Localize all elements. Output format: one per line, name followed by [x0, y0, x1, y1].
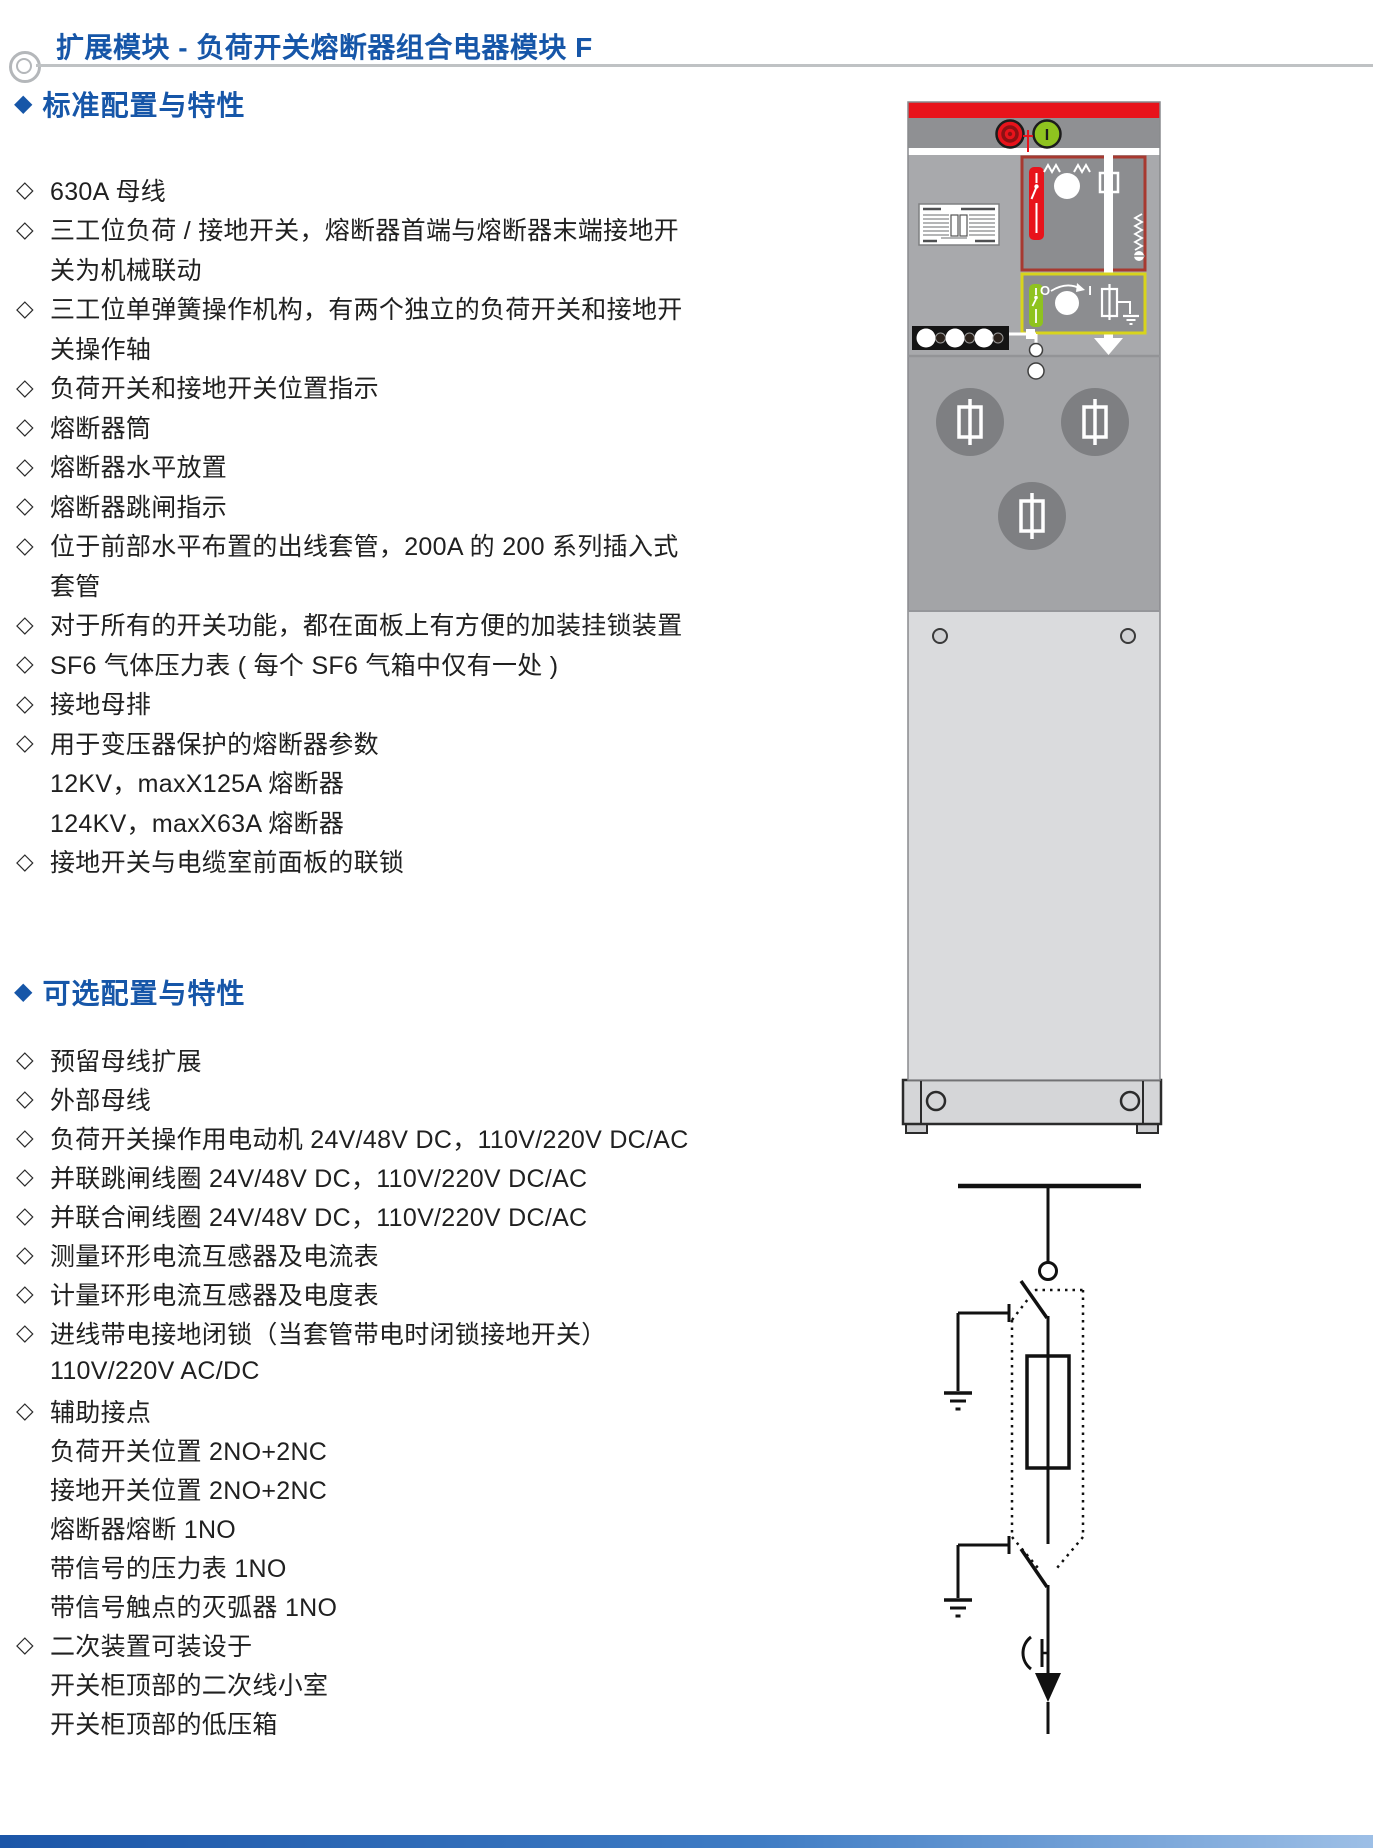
load-break-switch-blade	[1021, 1281, 1047, 1318]
item-text: 熔断器水平放置	[50, 448, 227, 484]
diamond-bullet-icon: ◇	[16, 1126, 50, 1149]
earth-branch-bottom	[944, 1536, 1009, 1616]
item-text: 外部母线	[50, 1081, 151, 1117]
close-button-label: I	[1045, 127, 1049, 144]
title-divider	[36, 64, 1373, 67]
list-item: 接地开关位置 2NO+2NC	[16, 1469, 736, 1508]
single-line-diagram	[930, 1170, 1170, 1745]
list-item: ◇ 辅助接点	[16, 1391, 736, 1430]
item-text: 三工位负荷 / 接地开关，熔断器首端与熔断器末端接地开	[50, 211, 679, 247]
earthing-switch-blade	[1021, 1549, 1047, 1587]
list-item: 关为机械联动	[16, 249, 736, 289]
item-text: 预留母线扩展	[50, 1042, 202, 1078]
item-text: 三工位单弹簧操作机构，有两个独立的负荷开关和接地开	[50, 290, 683, 326]
list-item: ◇ 接地开关与电缆室前面板的联锁	[16, 842, 736, 882]
item-text: 辅助接点	[50, 1393, 151, 1429]
item-text: 位于前部水平布置的出线套管，200A 的 200 系列插入式	[50, 527, 679, 563]
fuse-bushing-right	[1061, 388, 1129, 456]
list-item: ◇ 并联合闸线圈 24V/48V DC，110V/220V DC/AC	[16, 1196, 736, 1235]
optional-feature-list: ◇ 预留母线扩展 ◇ 外部母线 ◇ 负荷开关操作用电动机 24V/48V DC，…	[16, 1040, 736, 1742]
diamond-bullet-icon: ◇	[16, 613, 50, 636]
item-text: 熔断器熔断 1NO	[50, 1510, 236, 1546]
list-item: 带信号触点的灭弧器 1NO	[16, 1586, 736, 1625]
operating-shaft-hole	[1055, 291, 1079, 315]
list-item: 带信号的压力表 1NO	[16, 1547, 736, 1586]
rating-plate	[919, 204, 999, 245]
cable-arrow	[1035, 1673, 1061, 1702]
item-text: 对于所有的开关功能，都在面板上有方便的加装挂锁装置	[50, 606, 683, 642]
list-item: ◇ 负荷开关操作用电动机 24V/48V DC，110V/220V DC/AC	[16, 1118, 736, 1157]
list-item: ◇ 三工位负荷 / 接地开关，熔断器首端与熔断器末端接地开	[16, 210, 736, 250]
diamond-bullet-icon: ◇	[16, 415, 50, 438]
section-heading-optional: ◆ 可选配置与特性	[14, 972, 245, 1012]
list-item: ◇ 三工位单弹簧操作机构，有两个独立的负荷开关和接地开	[16, 289, 736, 329]
list-item: ◇ 并联跳闸线圈 24V/48V DC，110V/220V DC/AC	[16, 1157, 736, 1196]
door-screw	[933, 629, 947, 643]
diamond-filled-icon: ◆	[14, 92, 32, 116]
list-item: ◇ 对于所有的开关功能，都在面板上有方便的加装挂锁装置	[16, 605, 736, 645]
list-item: 负荷开关位置 2NO+2NC	[16, 1430, 736, 1469]
item-text: 带信号的压力表 1NO	[50, 1549, 287, 1585]
switchgear-cabinet-figure: I	[898, 95, 1166, 1145]
item-text: 熔断器跳闸指示	[50, 488, 227, 524]
white-stripe	[908, 148, 1160, 155]
list-item: 套管	[16, 565, 736, 605]
item-text: 开关柜顶部的低压箱	[50, 1705, 278, 1741]
section-title: 可选配置与特性	[42, 972, 245, 1012]
item-text: 测量环形电流互感器及电流表	[50, 1237, 379, 1273]
list-item: ◇ 负荷开关和接地开关位置指示	[16, 368, 736, 408]
open-pushbutton-red	[997, 121, 1024, 148]
red-top-band	[908, 102, 1160, 118]
section-heading-standard: ◆ 标准配置与特性	[14, 84, 245, 124]
section-title: 标准配置与特性	[42, 84, 245, 124]
item-text: SF6 气体压力表 ( 每个 SF6 气箱中仅有一处 )	[50, 646, 558, 682]
item-text: 630A 母线	[50, 172, 166, 208]
diamond-bullet-icon: ◇	[16, 494, 50, 517]
item-text: 二次装置可装设于	[50, 1627, 252, 1663]
item-text: 12KV，maxX125A 熔断器	[50, 764, 344, 800]
diamond-bullet-icon: ◇	[16, 534, 50, 557]
item-text: 开关柜顶部的二次线小室	[50, 1666, 328, 1702]
diamond-bullet-icon: ◇	[16, 1204, 50, 1227]
list-item: ◇ 630A 母线	[16, 170, 736, 210]
list-item: ◇ 计量环形电流互感器及电度表	[16, 1274, 736, 1313]
item-text: 负荷开关和接地开关位置指示	[50, 369, 379, 405]
item-text: 并联跳闸线圈 24V/48V DC，110V/220V DC/AC	[50, 1159, 587, 1195]
list-item: 关操作轴	[16, 328, 736, 368]
footer-bar	[0, 1835, 1373, 1848]
cabinet-base	[903, 1080, 1161, 1124]
switch-mimic-panel	[1022, 157, 1145, 270]
list-item: ◇ 熔断器跳闸指示	[16, 486, 736, 526]
lower-door-panel	[908, 612, 1160, 1080]
mimic-close-label: I	[1088, 283, 1092, 298]
fuse-bushing-center	[998, 482, 1066, 550]
operating-shaft-hole	[1054, 173, 1080, 199]
diamond-bullet-icon: ◇	[16, 1321, 50, 1344]
diamond-bullet-icon: ◇	[16, 1633, 50, 1656]
item-text: 带信号触点的灭弧器 1NO	[50, 1588, 337, 1624]
diamond-bullet-icon: ◇	[16, 731, 50, 754]
close-pushbutton-green: I	[1034, 121, 1061, 148]
list-item: 熔断器熔断 1NO	[16, 1508, 736, 1547]
ring-decoration-icon	[9, 51, 41, 83]
list-item: ◇ SF6 气体压力表 ( 每个 SF6 气箱中仅有一处 )	[16, 644, 736, 684]
list-item: 124KV，maxX63A 熔断器	[16, 802, 736, 842]
item-text: 计量环形电流互感器及电度表	[50, 1276, 379, 1312]
datasheet-page: 扩展模块 - 负荷开关熔断器组合电器模块 F ◆ 标准配置与特性 ◇ 630A …	[0, 0, 1373, 1848]
item-text: 进线带电接地闭锁（当套管带电时闭锁接地开关）	[50, 1315, 607, 1351]
list-item: ◇ 接地母排	[16, 684, 736, 724]
list-item: ◇ 外部母线	[16, 1079, 736, 1118]
earthing-mimic-panel: O I	[1022, 274, 1145, 333]
list-item: ◇ 测量环形电流互感器及电流表	[16, 1235, 736, 1274]
item-text: 负荷开关操作用电动机 24V/48V DC，110V/220V DC/AC	[50, 1120, 689, 1156]
standard-feature-list: ◇ 630A 母线 ◇ 三工位负荷 / 接地开关，熔断器首端与熔断器末端接地开 …	[16, 170, 736, 881]
padlock-strip	[912, 326, 1009, 350]
diamond-bullet-icon: ◇	[16, 1399, 50, 1422]
item-text: 用于变压器保护的熔断器参数	[50, 725, 379, 761]
list-item: ◇ 熔断器水平放置	[16, 447, 736, 487]
diamond-bullet-icon: ◇	[16, 652, 50, 675]
mimic-open-label: O	[1040, 283, 1050, 298]
list-item: ◇ 用于变压器保护的熔断器参数	[16, 723, 736, 763]
list-item: 110V/220V AC/DC	[16, 1352, 736, 1391]
fuse-bushing-left	[936, 388, 1004, 456]
item-text: 关为机械联动	[50, 251, 202, 287]
diamond-bullet-icon: ◇	[16, 455, 50, 478]
list-item: ◇ 熔断器筒	[16, 407, 736, 447]
diamond-bullet-icon: ◇	[16, 1243, 50, 1266]
diamond-bullet-icon: ◇	[16, 376, 50, 399]
diamond-bullet-icon: ◇	[16, 1087, 50, 1110]
diamond-bullet-icon: ◇	[16, 297, 50, 320]
diamond-filled-icon: ◆	[14, 980, 32, 1004]
switch-contact-circle	[1040, 1263, 1057, 1280]
list-item: ◇ 预留母线扩展	[16, 1040, 736, 1079]
diamond-bullet-icon: ◇	[16, 1048, 50, 1071]
list-item: ◇ 二次装置可装设于	[16, 1625, 736, 1664]
item-text: 接地母排	[50, 685, 151, 721]
item-text: 负荷开关位置 2NO+2NC	[50, 1432, 327, 1468]
item-text: 接地开关与电缆室前面板的联锁	[50, 843, 404, 879]
list-item: ◇ 位于前部水平布置的出线套管，200A 的 200 系列插入式	[16, 526, 736, 566]
diamond-bullet-icon: ◇	[16, 1282, 50, 1305]
diamond-bullet-icon: ◇	[16, 692, 50, 715]
item-text: 110V/220V AC/DC	[50, 1357, 260, 1386]
page-title: 扩展模块 - 负荷开关熔断器组合电器模块 F	[56, 26, 593, 66]
door-screw	[1121, 629, 1135, 643]
item-text: 熔断器筒	[50, 409, 151, 445]
diamond-bullet-icon: ◇	[16, 1165, 50, 1188]
list-item: 开关柜顶部的低压箱	[16, 1703, 736, 1742]
item-text: 接地开关位置 2NO+2NC	[50, 1471, 327, 1507]
item-text: 套管	[50, 567, 101, 603]
diamond-bullet-icon: ◇	[16, 218, 50, 241]
item-text: 124KV，maxX63A 熔断器	[50, 804, 344, 840]
list-item: 开关柜顶部的二次线小室	[16, 1664, 736, 1703]
list-item: ◇ 进线带电接地闭锁（当套管带电时闭锁接地开关）	[16, 1313, 736, 1352]
capacitive-indicator	[1023, 1637, 1048, 1669]
list-item: 12KV，maxX125A 熔断器	[16, 763, 736, 803]
earth-branch-top	[944, 1304, 1009, 1409]
diamond-bullet-icon: ◇	[16, 850, 50, 873]
diamond-bullet-icon: ◇	[16, 178, 50, 201]
item-text: 并联合闸线圈 24V/48V DC，110V/220V DC/AC	[50, 1198, 587, 1234]
item-text: 关操作轴	[50, 330, 151, 366]
